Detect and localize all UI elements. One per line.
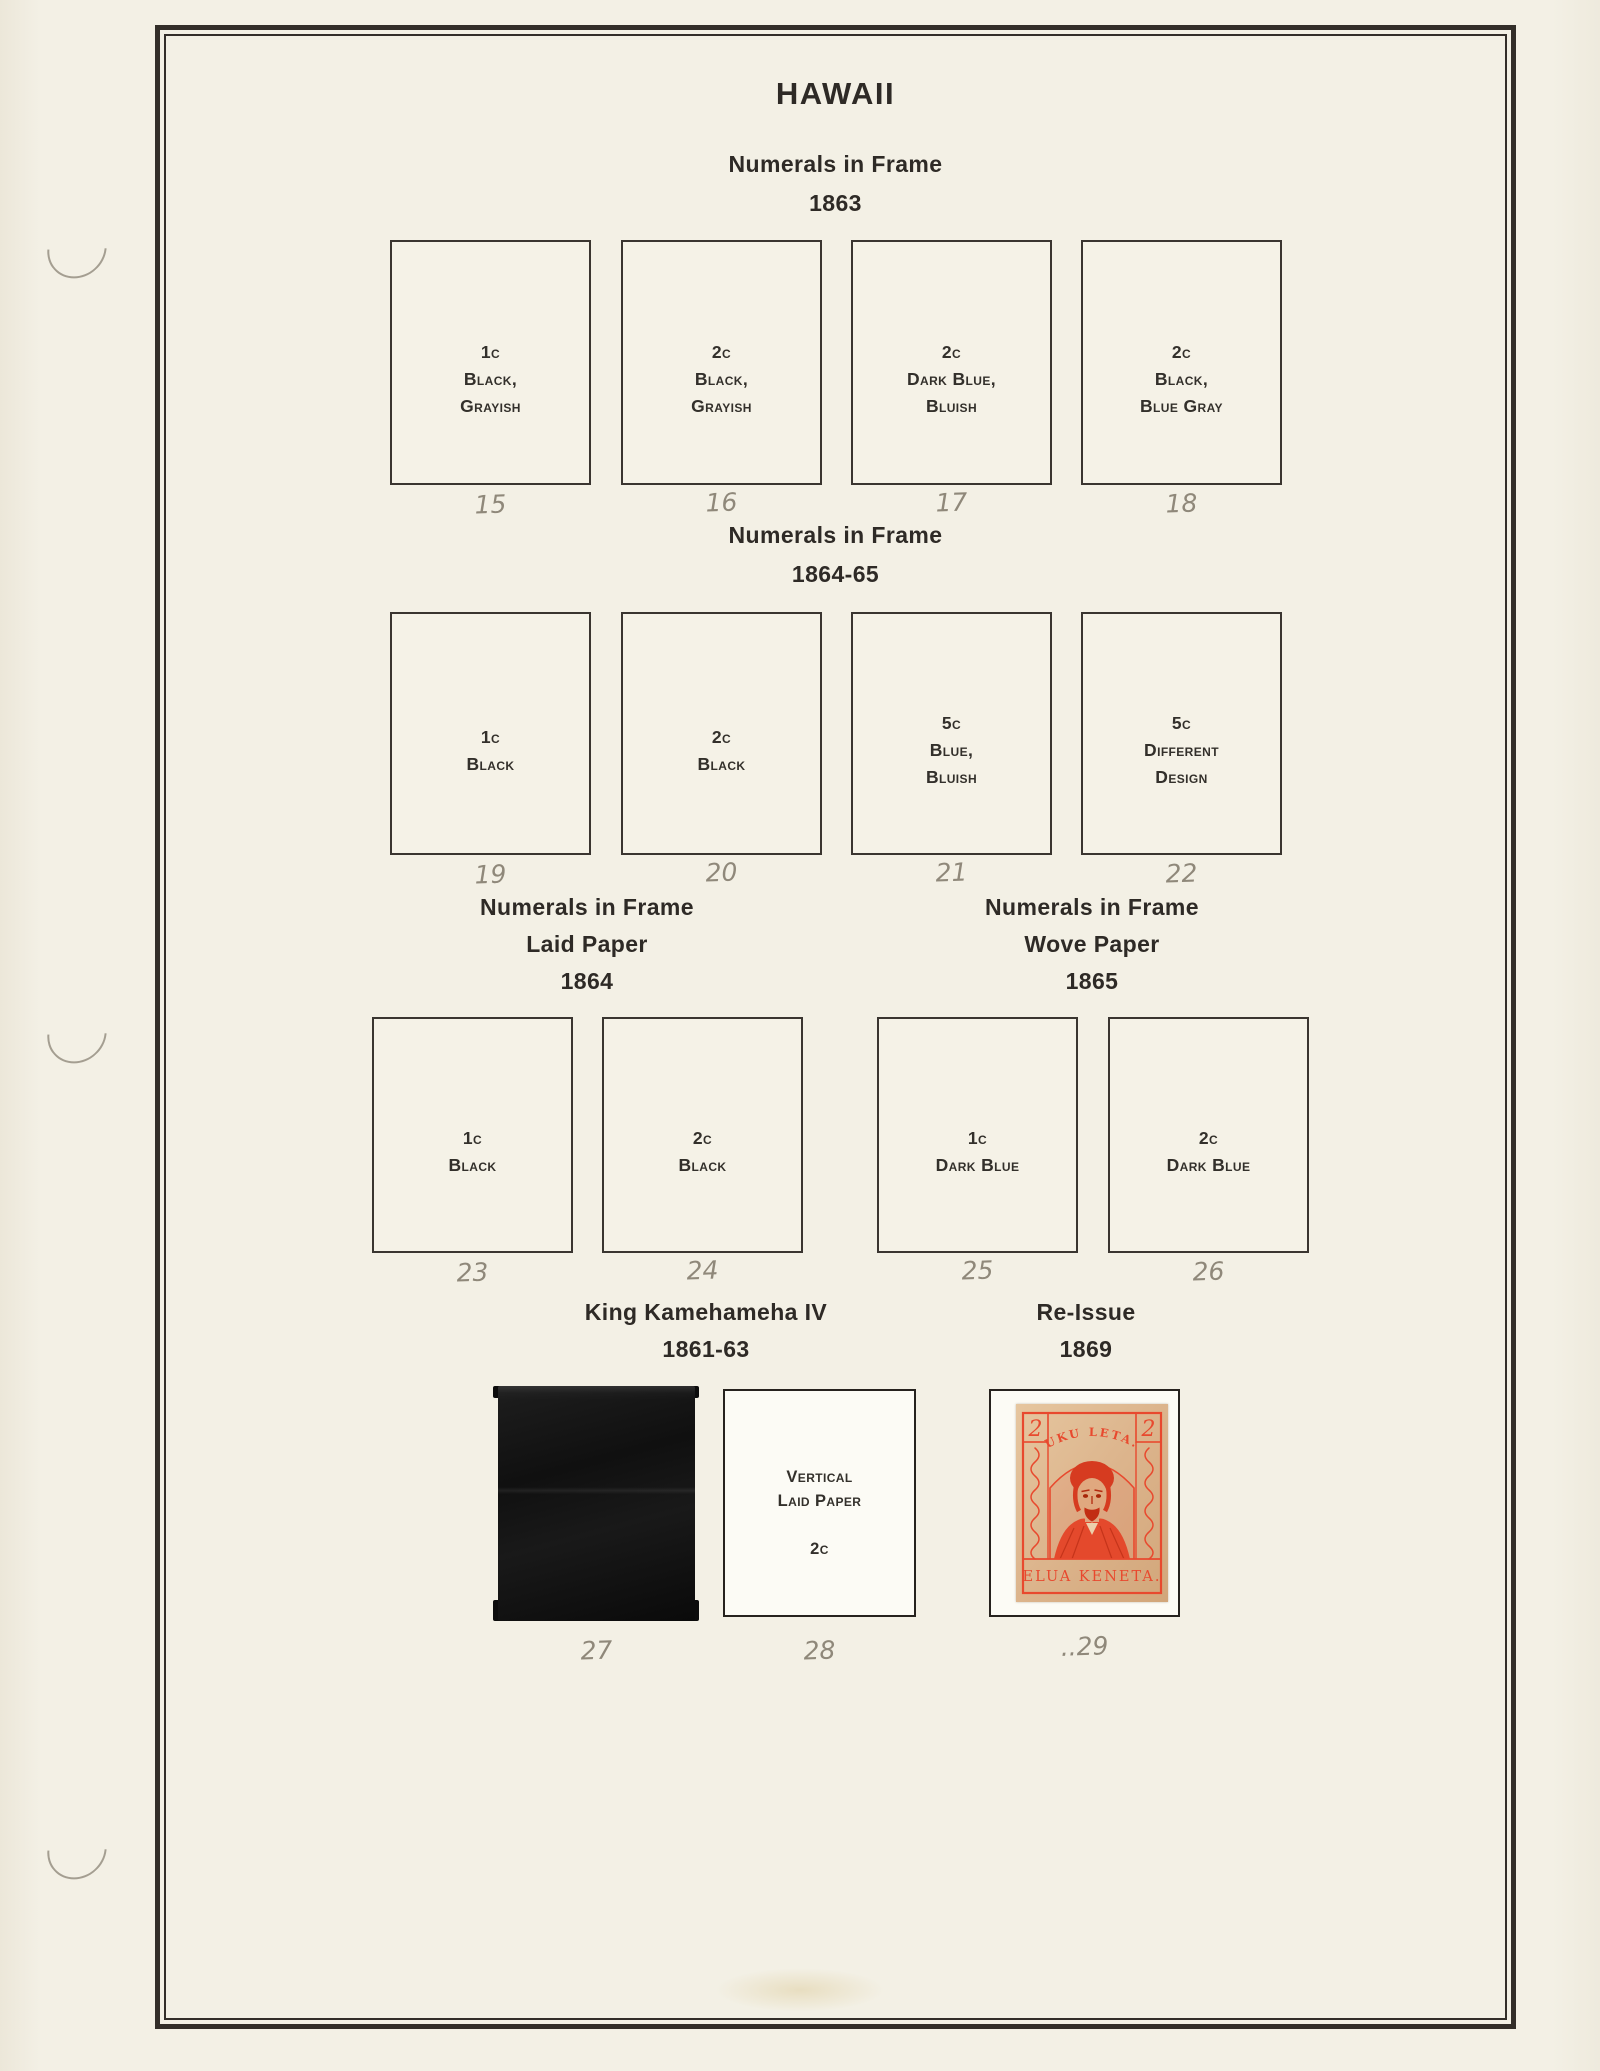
stamp-box-18-label3: Blue Gray [1140, 393, 1223, 420]
section3-left-line3: 1864 [372, 963, 802, 1000]
stamp-29-backing: 2 2 UKU LETA. ELUA KENETA [989, 1389, 1180, 1617]
stamp-box-25-label2: Dark Blue [936, 1152, 1020, 1179]
section2-heading: Numerals in Frame [155, 517, 1516, 554]
stamp-box-20-label2: Black [698, 751, 746, 778]
stamp-box-28-label2: Laid Paper [778, 1489, 862, 1513]
stamp-corner-right: 2 [1141, 1417, 1156, 1442]
stamp-box-21-label2: Blue, [930, 737, 974, 764]
section3-right-line1: Numerals in Frame [877, 889, 1307, 926]
stamp-box-18-label2: Black, [1155, 366, 1208, 393]
stamp-box-16: 2c Black, Grayish [621, 240, 822, 485]
stamp-box-23-label: 1c [463, 1125, 482, 1152]
section3-right-line2: Wove Paper [877, 926, 1307, 963]
stamp-box-22-label3: Design [1155, 764, 1207, 791]
section2-year: 1864-65 [155, 556, 1516, 593]
section3-right-heading: Numerals in Frame Wove Paper 1865 [877, 889, 1307, 1000]
binder-hole-bottom [35, 1808, 119, 1891]
binder-hole-middle [35, 992, 119, 1075]
stamp-box-19-label: 1c [481, 724, 500, 751]
stamp-box-24-label: 2c [693, 1125, 712, 1152]
stamp-box-18: 2c Black, Blue Gray [1081, 240, 1282, 485]
stamp-box-28: Vertical Laid Paper 2c [723, 1389, 916, 1617]
stamp-box-15-label: 1c [481, 339, 500, 366]
section3-left-line1: Numerals in Frame [372, 889, 802, 926]
album-page: { "page": { "title": "HAWAII" }, "colors… [0, 0, 1600, 2071]
stamp-box-17-label2: Dark Blue, [907, 366, 996, 393]
stamp-box-15-label3: Grayish [460, 393, 521, 420]
section3-left-line2: Laid Paper [372, 926, 802, 963]
section4-right-line1: Re-Issue [876, 1294, 1296, 1331]
section4-right-heading: Re-Issue 1869 [876, 1294, 1296, 1368]
stamp-box-23-label2: Black [449, 1152, 497, 1179]
stamp-box-22: 5c Different Design [1081, 612, 1282, 855]
stamp-box-16-label3: Grayish [691, 393, 752, 420]
stamp-box-22-label: 5c [1172, 710, 1191, 737]
stamp-box-21-label3: Bluish [926, 764, 977, 791]
stamp-box-26-label2: Dark Blue [1167, 1152, 1251, 1179]
section4-right-line2: 1869 [876, 1331, 1296, 1368]
binder-hole-top [35, 207, 119, 290]
stamp-box-19: 1c Black [390, 612, 591, 855]
section1-year: 1863 [155, 185, 1516, 222]
page-border-frame [155, 25, 1516, 2029]
stamp-29-image: 2 2 UKU LETA. ELUA KENETA [1016, 1404, 1168, 1602]
stamp-box-19-label2: Black [467, 751, 515, 778]
stamp-box-17-label3: Bluish [926, 393, 977, 420]
stamp-box-28-label: Vertical [786, 1465, 852, 1489]
stamp-bottom-text: ELUA KENETA. [1023, 1569, 1162, 1585]
stamp-box-15: 1c Black, Grayish [390, 240, 591, 485]
stamp-box-17: 2c Dark Blue, Bluish [851, 240, 1052, 485]
section3-right-line3: 1865 [877, 963, 1307, 1000]
stamp-box-26: 2c Dark Blue [1108, 1017, 1309, 1253]
paper-smudge [715, 1968, 885, 2012]
stamp-box-20-label: 2c [712, 724, 731, 751]
page-title: HAWAII [155, 76, 1516, 112]
stamp-box-16-label2: Black, [695, 366, 748, 393]
stamp-mount-27 [498, 1386, 695, 1621]
stamp-corner-left: 2 [1028, 1417, 1043, 1442]
section3-left-heading: Numerals in Frame Laid Paper 1864 [372, 889, 802, 1000]
stamp-box-24: 2c Black [602, 1017, 803, 1253]
stamp-box-21-label: 5c [942, 710, 961, 737]
stamp-box-15-label2: Black, [464, 366, 517, 393]
stamp-box-23: 1c Black [372, 1017, 573, 1253]
stamp-box-24-label2: Black [679, 1152, 727, 1179]
stamp-box-22-label2: Different [1144, 737, 1219, 764]
stamp-box-26-label: 2c [1199, 1125, 1218, 1152]
stamp-box-20: 2c Black [621, 612, 822, 855]
stamp-box-16-label: 2c [712, 339, 731, 366]
stamp-box-21: 5c Blue, Bluish [851, 612, 1052, 855]
stamp-box-25-label: 1c [968, 1125, 987, 1152]
stamp-box-17-label: 2c [942, 339, 961, 366]
stamp-box-18-label: 2c [1172, 339, 1191, 366]
stamp-box-28-value: 2c [810, 1537, 829, 1561]
section1-heading: Numerals in Frame [155, 146, 1516, 183]
stamp-box-25: 1c Dark Blue [877, 1017, 1078, 1253]
